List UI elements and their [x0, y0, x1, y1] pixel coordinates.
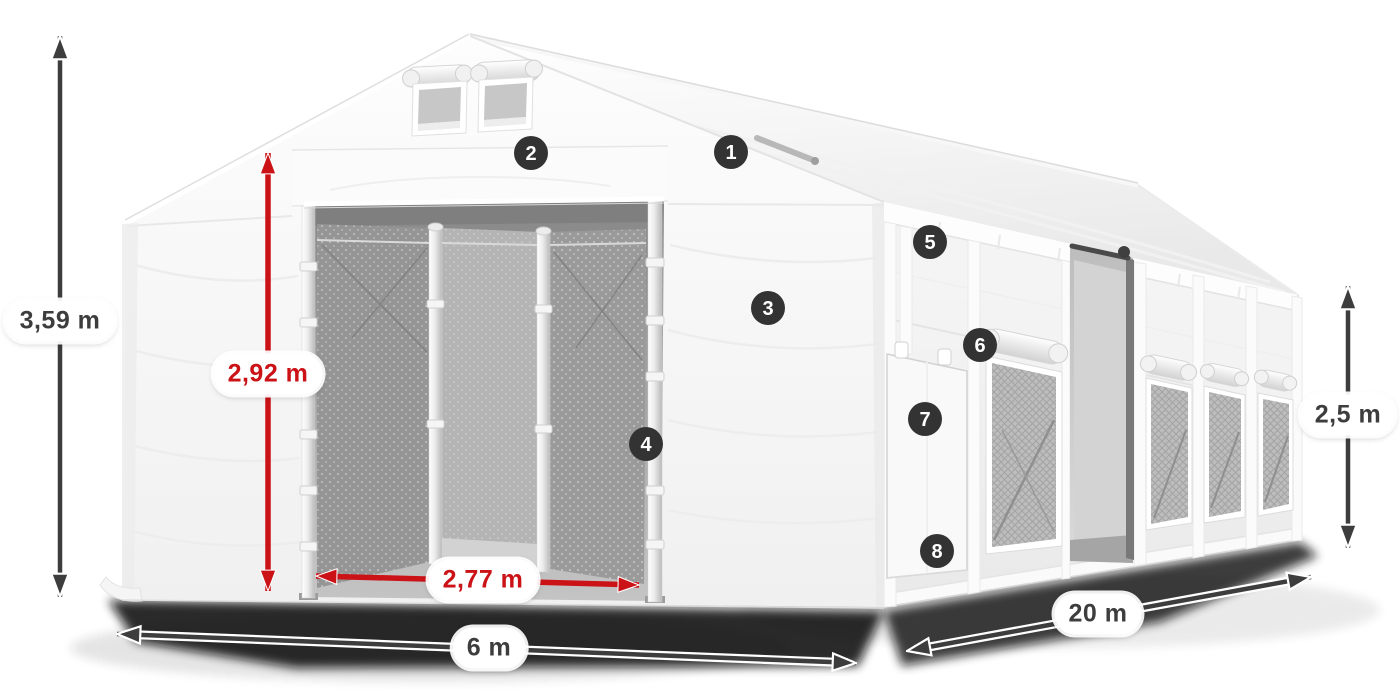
- dimension-label-side-length: 20 m: [1055, 594, 1142, 635]
- dimension-label-front-width: 6 m: [453, 628, 526, 669]
- badge-1: 1: [714, 135, 748, 169]
- badge-number: 5: [924, 232, 935, 254]
- side-doorway-opening: [1070, 244, 1134, 563]
- badge-6: 6: [963, 328, 997, 362]
- vent-mesh: [484, 83, 527, 120]
- badge-7: 7: [908, 402, 942, 436]
- gable-vent-left: [402, 64, 473, 136]
- entrance-mesh-panel-right: [550, 229, 646, 584]
- doorway-pole: [1126, 258, 1134, 560]
- badge-2: 2: [514, 136, 548, 170]
- badge-5: 5: [913, 225, 947, 259]
- dimension-label-entrance-height: 2,92 m: [214, 354, 323, 395]
- vent-mesh: [418, 87, 461, 124]
- entrance-pole-mid-left: [429, 226, 442, 564]
- dimension-label-side-wall-height: 2,5 m: [1301, 395, 1395, 436]
- badge-8: 8: [920, 534, 954, 568]
- tent-illustration: 1 2 3 4 5 6 7 8: [0, 0, 1400, 700]
- entrance-mesh-panel-left: [317, 224, 429, 588]
- entrance-pole-mid-right: [537, 230, 550, 572]
- badge-number: 6: [974, 335, 985, 357]
- badge-number: 2: [525, 143, 536, 165]
- badge-3: 3: [751, 291, 785, 325]
- badge-number: 8: [931, 541, 942, 563]
- front-entrance: [299, 199, 665, 603]
- dimension-label-total-height: 3,59 m: [6, 301, 115, 342]
- badge-number: 7: [919, 409, 930, 431]
- badge-number: 3: [762, 298, 773, 320]
- badge-number: 4: [640, 434, 652, 456]
- tent-dimension-diagram: 1 2 3 4 5 6 7 8 3,59 m 2,92: [0, 0, 1400, 700]
- window-mesh: [992, 363, 1056, 547]
- dimension-label-entrance-width: 2,77 m: [429, 560, 538, 601]
- gable-vent-right: [470, 59, 543, 132]
- badge-number: 1: [725, 142, 736, 164]
- badge-4: 4: [629, 427, 663, 461]
- entrance-center-gap: [441, 228, 538, 570]
